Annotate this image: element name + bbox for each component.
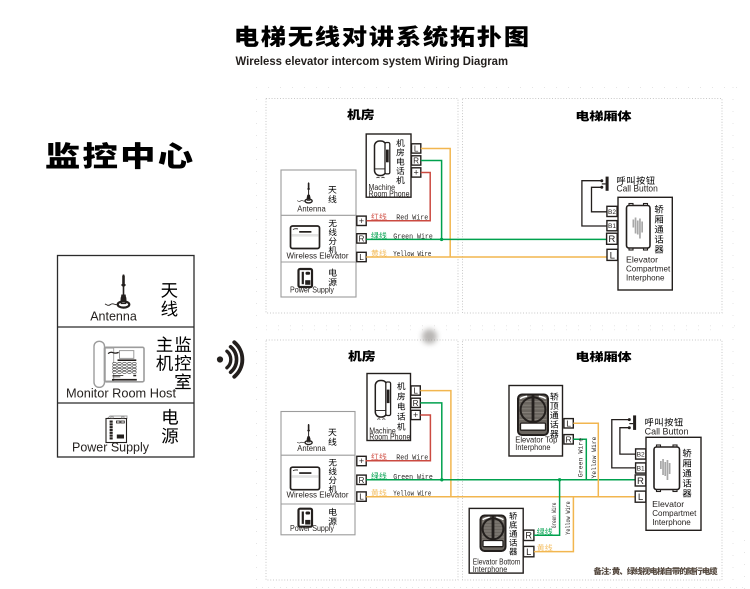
svg-text:Antenna: Antenna — [297, 204, 326, 214]
svg-text:Red Wire: Red Wire — [396, 455, 428, 463]
svg-text:Wireless elevator intercom sys: Wireless elevator intercom system Wiring… — [236, 54, 509, 68]
svg-text:+: + — [359, 456, 364, 466]
svg-text:Green Wire: Green Wire — [577, 438, 584, 478]
svg-text:Interphone: Interphone — [626, 273, 665, 283]
svg-text:Wireless Elevator: Wireless Elevator — [287, 251, 349, 261]
svg-text:Power Supply: Power Supply — [290, 284, 335, 294]
svg-text:Room Phone: Room Phone — [369, 189, 410, 198]
svg-text:Interphone: Interphone — [515, 443, 551, 452]
svg-text:B1: B1 — [637, 465, 645, 472]
svg-text:+: + — [359, 216, 364, 226]
svg-text:R: R — [525, 531, 532, 541]
svg-text:B2: B2 — [608, 209, 616, 216]
svg-text:B2: B2 — [637, 451, 645, 458]
svg-text:L: L — [414, 144, 419, 153]
svg-text:R: R — [359, 234, 365, 243]
svg-text:Yellow Wire: Yellow Wire — [591, 436, 598, 478]
svg-text:Power Supply: Power Supply — [290, 523, 335, 533]
svg-text:Green Wire: Green Wire — [551, 503, 558, 528]
svg-text:R: R — [608, 234, 615, 245]
svg-text:Yellow Wire: Yellow Wire — [565, 501, 572, 534]
svg-text:Call Button: Call Button — [645, 426, 689, 436]
svg-text:L: L — [359, 253, 364, 262]
svg-text:Interphone: Interphone — [652, 517, 691, 527]
svg-text:L: L — [413, 387, 418, 396]
svg-text:Green Wire: Green Wire — [393, 474, 433, 482]
svg-text:Room Phone: Room Phone — [369, 433, 410, 442]
svg-text:R: R — [413, 156, 419, 165]
svg-text:Red Wire: Red Wire — [396, 215, 428, 223]
svg-text:R: R — [359, 476, 365, 485]
svg-text:Monitor Room Host: Monitor Room Host — [66, 386, 176, 401]
svg-text:L: L — [610, 250, 616, 261]
svg-text:+: + — [413, 168, 418, 178]
svg-text:L: L — [638, 492, 644, 503]
svg-text:Call Button: Call Button — [617, 184, 658, 194]
svg-text:R: R — [413, 399, 419, 408]
svg-text:B1: B1 — [608, 223, 616, 230]
svg-text:L: L — [526, 547, 531, 557]
svg-text:Yellow Wire: Yellow Wire — [393, 251, 431, 259]
svg-text:Antenna: Antenna — [297, 443, 326, 453]
svg-text:Wireless Elevator: Wireless Elevator — [287, 490, 349, 500]
svg-text::: : — [609, 566, 612, 576]
svg-text:R: R — [565, 434, 571, 444]
svg-text:L: L — [359, 493, 364, 502]
svg-text:Interphone: Interphone — [473, 565, 508, 574]
svg-text:+: + — [413, 410, 418, 420]
svg-text:Antenna: Antenna — [90, 310, 137, 324]
svg-text:R: R — [637, 476, 644, 487]
svg-text:L: L — [566, 418, 571, 428]
svg-text:Power Supply: Power Supply — [72, 440, 149, 455]
svg-text:Green Wire: Green Wire — [393, 233, 433, 241]
